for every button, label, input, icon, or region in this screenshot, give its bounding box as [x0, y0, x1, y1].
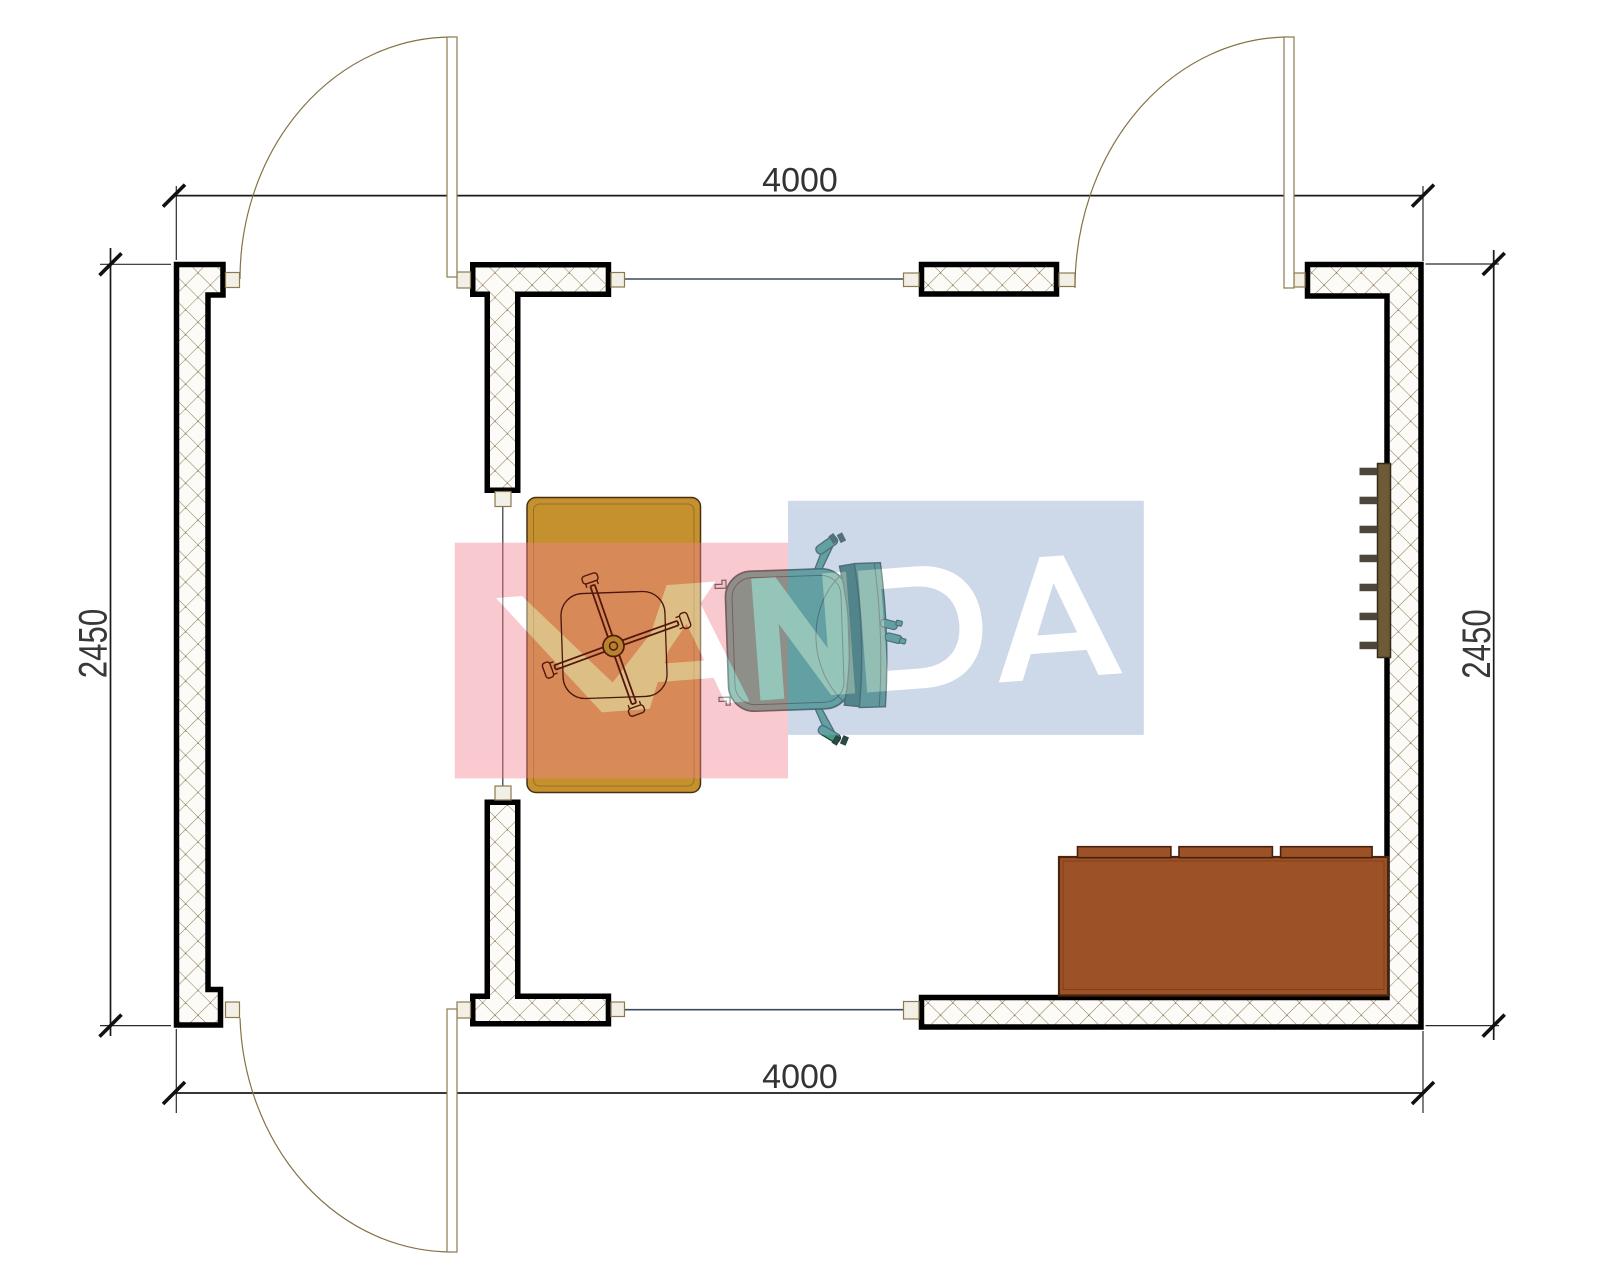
svg-text:4000: 4000	[762, 162, 838, 200]
svg-text:2450: 2450	[1454, 609, 1499, 678]
svg-text:2450: 2450	[71, 609, 116, 678]
svg-text:4000: 4000	[762, 1058, 838, 1096]
